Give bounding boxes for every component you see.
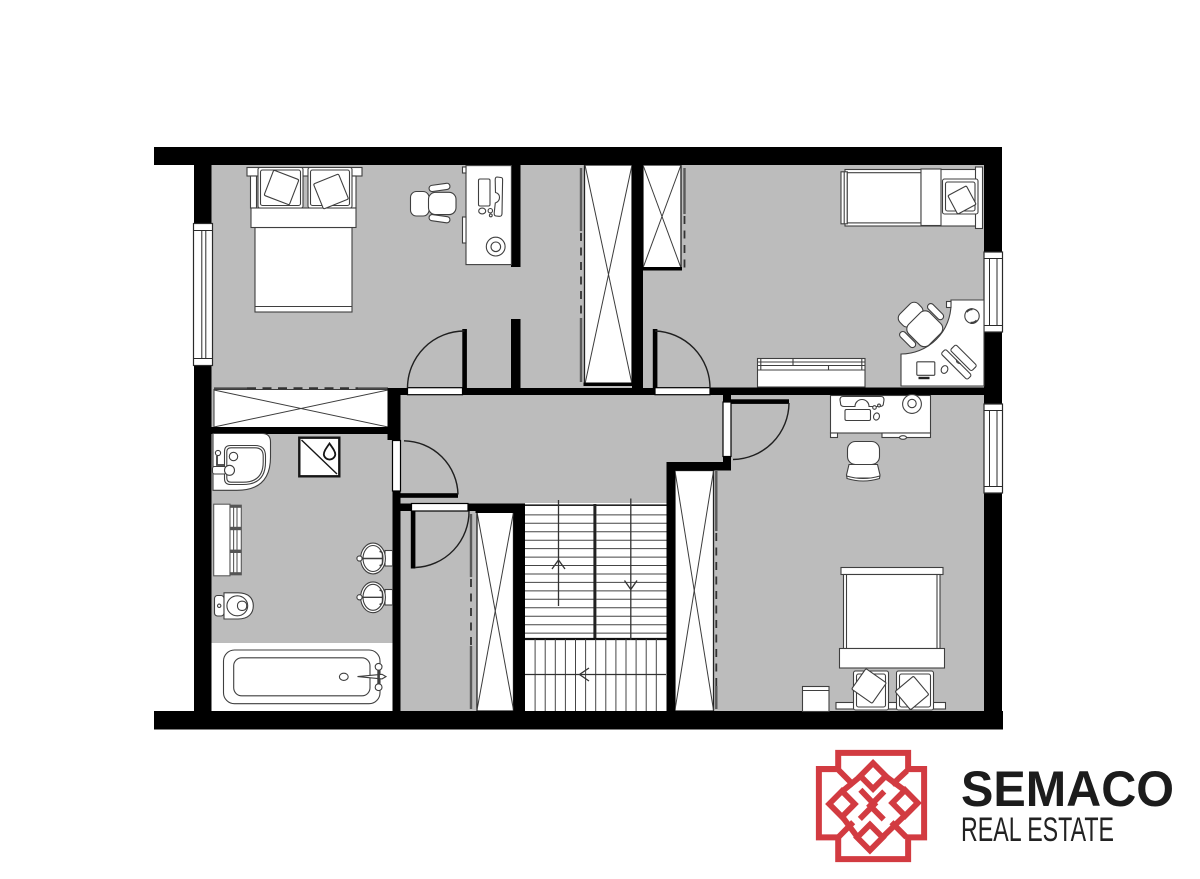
svg-text:REAL ESTATE: REAL ESTATE bbox=[961, 811, 1114, 849]
svg-text:SEMACO: SEMACO bbox=[961, 761, 1174, 817]
